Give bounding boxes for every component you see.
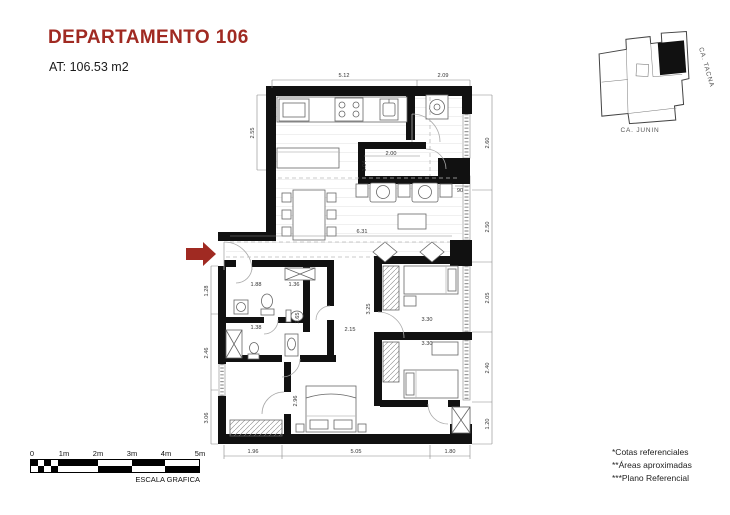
dim-label: 1.38	[251, 325, 262, 331]
dim-label: 2.55	[250, 128, 256, 139]
street-label-junin: CA. JUNIN	[621, 127, 660, 134]
note-line: **Áreas aproximadas	[612, 459, 692, 472]
floor-plan: 5.12 2.09 1.96 5.05 1.80 2.55 1.28 2.46 …	[0, 0, 730, 515]
scale-caption: ESCALA GRAFICA	[30, 475, 200, 484]
notes: *Cotas referenciales **Áreas aproximadas…	[612, 446, 692, 485]
bath-sink-icon	[234, 300, 248, 314]
dim-label: 1.04	[362, 161, 368, 172]
dim-label: 5.12	[339, 73, 350, 79]
shaft-x	[452, 407, 470, 433]
kitchen-island	[277, 148, 339, 168]
dim-label: 5.05	[351, 449, 362, 455]
entrance-arrow	[186, 242, 216, 266]
dim-label: 1.20	[485, 419, 491, 430]
scale-tick: 0	[30, 449, 34, 458]
dim-label: 3.30	[422, 341, 433, 347]
scale-tick: 5m	[195, 449, 205, 458]
dim-label: 2.60	[485, 138, 491, 149]
stove-icon	[335, 98, 363, 121]
scale-tick: 3m	[127, 449, 137, 458]
dim-label: 2.50	[485, 222, 491, 233]
desk-bed3	[432, 342, 458, 355]
dim-label: 2.09	[438, 73, 449, 79]
dim-label: 2.65	[295, 313, 301, 324]
shower-x	[226, 330, 242, 358]
scale-tick: 4m	[161, 449, 171, 458]
bed2	[404, 266, 458, 306]
dim-label: 1.28	[204, 286, 210, 297]
dim-label: 2.40	[485, 363, 491, 374]
scale-tick-labels: 0 1m 2m 3m 4m 5m	[30, 449, 202, 459]
dim-label: 1.96	[248, 449, 259, 455]
toilet3-icon	[248, 343, 259, 360]
dim-label: 2.05	[485, 293, 491, 304]
toilet-icon	[261, 294, 274, 315]
dim-label: 1.80	[445, 449, 456, 455]
dim-label: 2.15	[345, 327, 356, 333]
wardrobe-x	[285, 268, 315, 280]
dim-label: 3.06	[204, 413, 210, 424]
closet-bed3	[383, 342, 399, 382]
scale-bar: 0 1m 2m 3m 4m 5m ESCALA GRAFICA	[30, 449, 202, 484]
dim-label: 2.00	[386, 151, 397, 157]
dim-label: 3.25	[366, 304, 372, 315]
bed3	[404, 370, 458, 398]
note-line: ***Plano Referencial	[612, 472, 692, 485]
coffee-table	[398, 214, 426, 229]
dining-table	[282, 190, 336, 240]
unit-highlight	[656, 39, 688, 77]
washing-machine-icon	[426, 95, 448, 119]
dim-label: 2.96	[293, 396, 299, 407]
dim-label: 1.88	[251, 282, 262, 288]
dim-label: 1.36	[289, 282, 300, 288]
closet-master	[230, 420, 282, 436]
scale-tick: 2m	[93, 449, 103, 458]
note-line: *Cotas referenciales	[612, 446, 692, 459]
location-map: CA. TACNA CA. JUNIN	[596, 27, 716, 134]
scale-tick: 1m	[59, 449, 69, 458]
scale-bar-graphic	[30, 459, 200, 473]
vanity2	[285, 334, 298, 356]
street-label-tacna: CA. TACNA	[697, 47, 715, 89]
dim-label: 2.46	[204, 348, 210, 359]
closet-bed2	[383, 266, 399, 310]
dim-label: 90	[457, 188, 463, 194]
sink-icon	[380, 99, 398, 120]
dim-label: 6.31	[357, 229, 368, 235]
master-bed	[296, 386, 366, 432]
dim-label: 3.30	[422, 317, 433, 323]
